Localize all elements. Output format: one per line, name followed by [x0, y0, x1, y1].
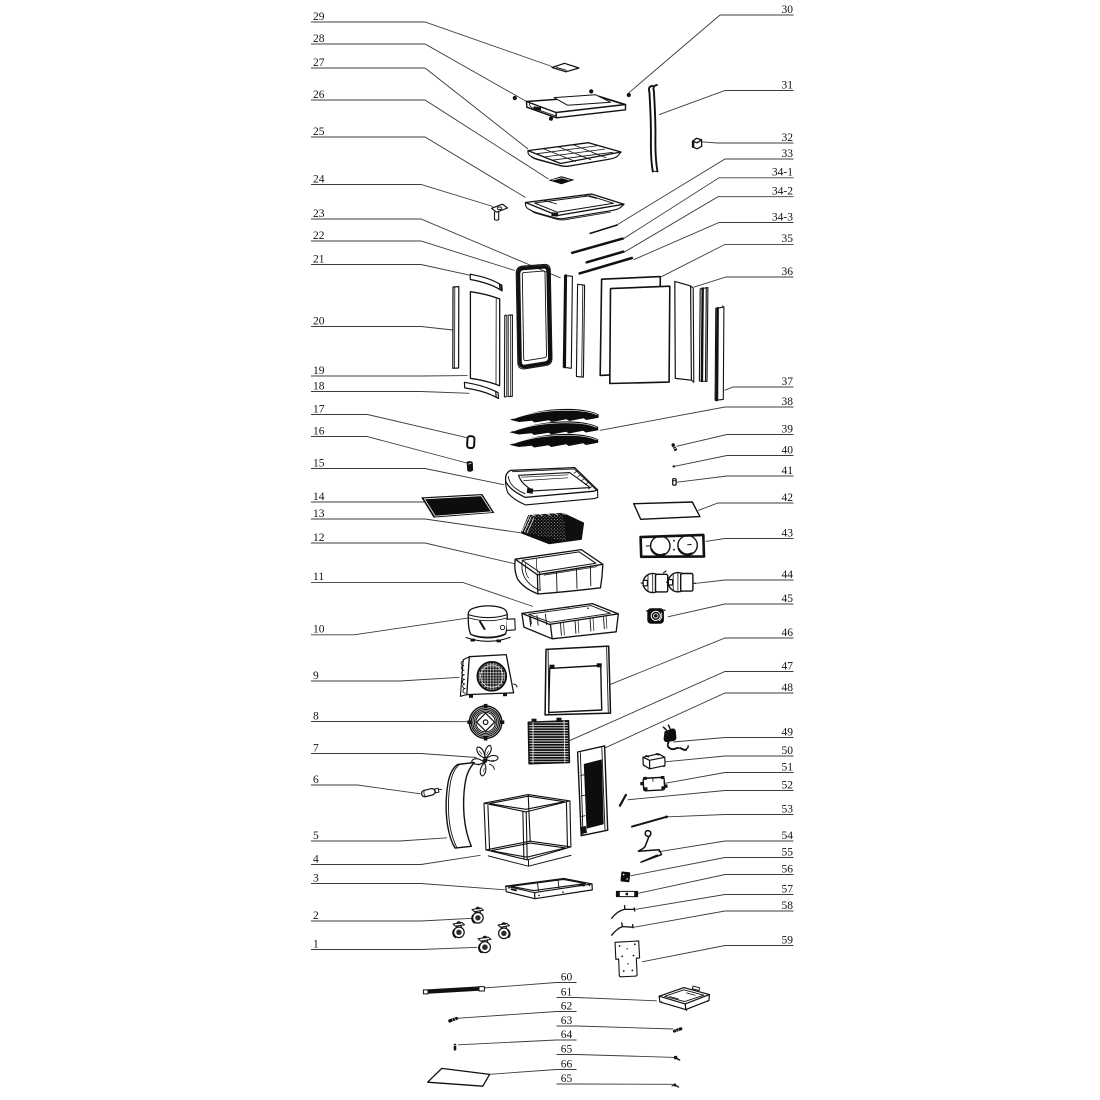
- svg-text:42: 42: [782, 492, 794, 504]
- svg-text:22: 22: [313, 230, 325, 242]
- svg-text:19: 19: [313, 365, 325, 377]
- svg-text:48: 48: [782, 682, 794, 694]
- svg-text:12: 12: [313, 532, 325, 544]
- svg-text:63: 63: [561, 1015, 573, 1027]
- svg-text:62: 62: [561, 1000, 573, 1012]
- svg-text:9: 9: [313, 670, 319, 682]
- svg-text:25: 25: [313, 126, 325, 138]
- svg-text:59: 59: [782, 934, 794, 946]
- svg-text:38: 38: [782, 396, 794, 408]
- svg-text:30: 30: [782, 4, 794, 16]
- svg-text:64: 64: [561, 1029, 573, 1041]
- svg-text:46: 46: [782, 627, 794, 639]
- svg-text:65: 65: [561, 1073, 573, 1085]
- svg-text:7: 7: [313, 742, 319, 754]
- svg-text:40: 40: [782, 444, 794, 456]
- svg-text:14: 14: [313, 491, 325, 503]
- svg-text:36: 36: [782, 266, 794, 278]
- svg-text:54: 54: [782, 830, 794, 842]
- svg-text:39: 39: [782, 423, 794, 435]
- svg-text:11: 11: [313, 571, 324, 583]
- svg-text:66: 66: [561, 1058, 573, 1070]
- svg-text:6: 6: [313, 774, 319, 786]
- svg-text:1: 1: [313, 938, 319, 950]
- svg-text:37: 37: [782, 376, 794, 388]
- svg-text:34-2: 34-2: [772, 186, 793, 198]
- svg-text:13: 13: [313, 508, 325, 520]
- svg-text:33: 33: [782, 148, 794, 160]
- svg-text:45: 45: [782, 593, 794, 605]
- svg-text:51: 51: [782, 761, 794, 773]
- svg-text:41: 41: [782, 465, 794, 477]
- svg-text:26: 26: [313, 89, 325, 101]
- svg-text:5: 5: [313, 830, 319, 842]
- svg-text:49: 49: [782, 726, 794, 738]
- svg-text:8: 8: [313, 710, 319, 722]
- svg-text:65: 65: [561, 1043, 573, 1055]
- svg-text:23: 23: [313, 208, 325, 220]
- svg-text:50: 50: [782, 745, 794, 757]
- svg-text:16: 16: [313, 425, 325, 437]
- svg-text:3: 3: [313, 872, 319, 884]
- svg-text:17: 17: [313, 403, 325, 415]
- svg-text:32: 32: [782, 132, 794, 144]
- svg-text:18: 18: [313, 380, 325, 392]
- svg-text:20: 20: [313, 315, 325, 327]
- svg-text:43: 43: [782, 527, 794, 539]
- svg-text:57: 57: [782, 883, 794, 895]
- svg-text:34-1: 34-1: [772, 167, 793, 179]
- svg-text:35: 35: [782, 233, 794, 245]
- svg-text:21: 21: [313, 253, 325, 265]
- svg-text:55: 55: [782, 846, 794, 858]
- svg-text:29: 29: [313, 11, 325, 23]
- svg-text:34-3: 34-3: [772, 211, 793, 223]
- svg-text:61: 61: [561, 986, 573, 998]
- svg-text:53: 53: [782, 803, 794, 815]
- svg-text:44: 44: [782, 569, 794, 581]
- svg-text:15: 15: [313, 457, 325, 469]
- svg-text:60: 60: [561, 971, 573, 983]
- svg-text:10: 10: [313, 624, 325, 636]
- svg-text:56: 56: [782, 863, 794, 875]
- svg-text:27: 27: [313, 57, 325, 69]
- svg-text:58: 58: [782, 900, 794, 912]
- svg-text:28: 28: [313, 33, 325, 45]
- svg-text:24: 24: [313, 173, 325, 185]
- svg-text:2: 2: [313, 910, 319, 922]
- svg-text:4: 4: [313, 853, 319, 865]
- svg-text:47: 47: [782, 660, 794, 672]
- svg-text:52: 52: [782, 779, 794, 791]
- svg-text:31: 31: [782, 79, 794, 91]
